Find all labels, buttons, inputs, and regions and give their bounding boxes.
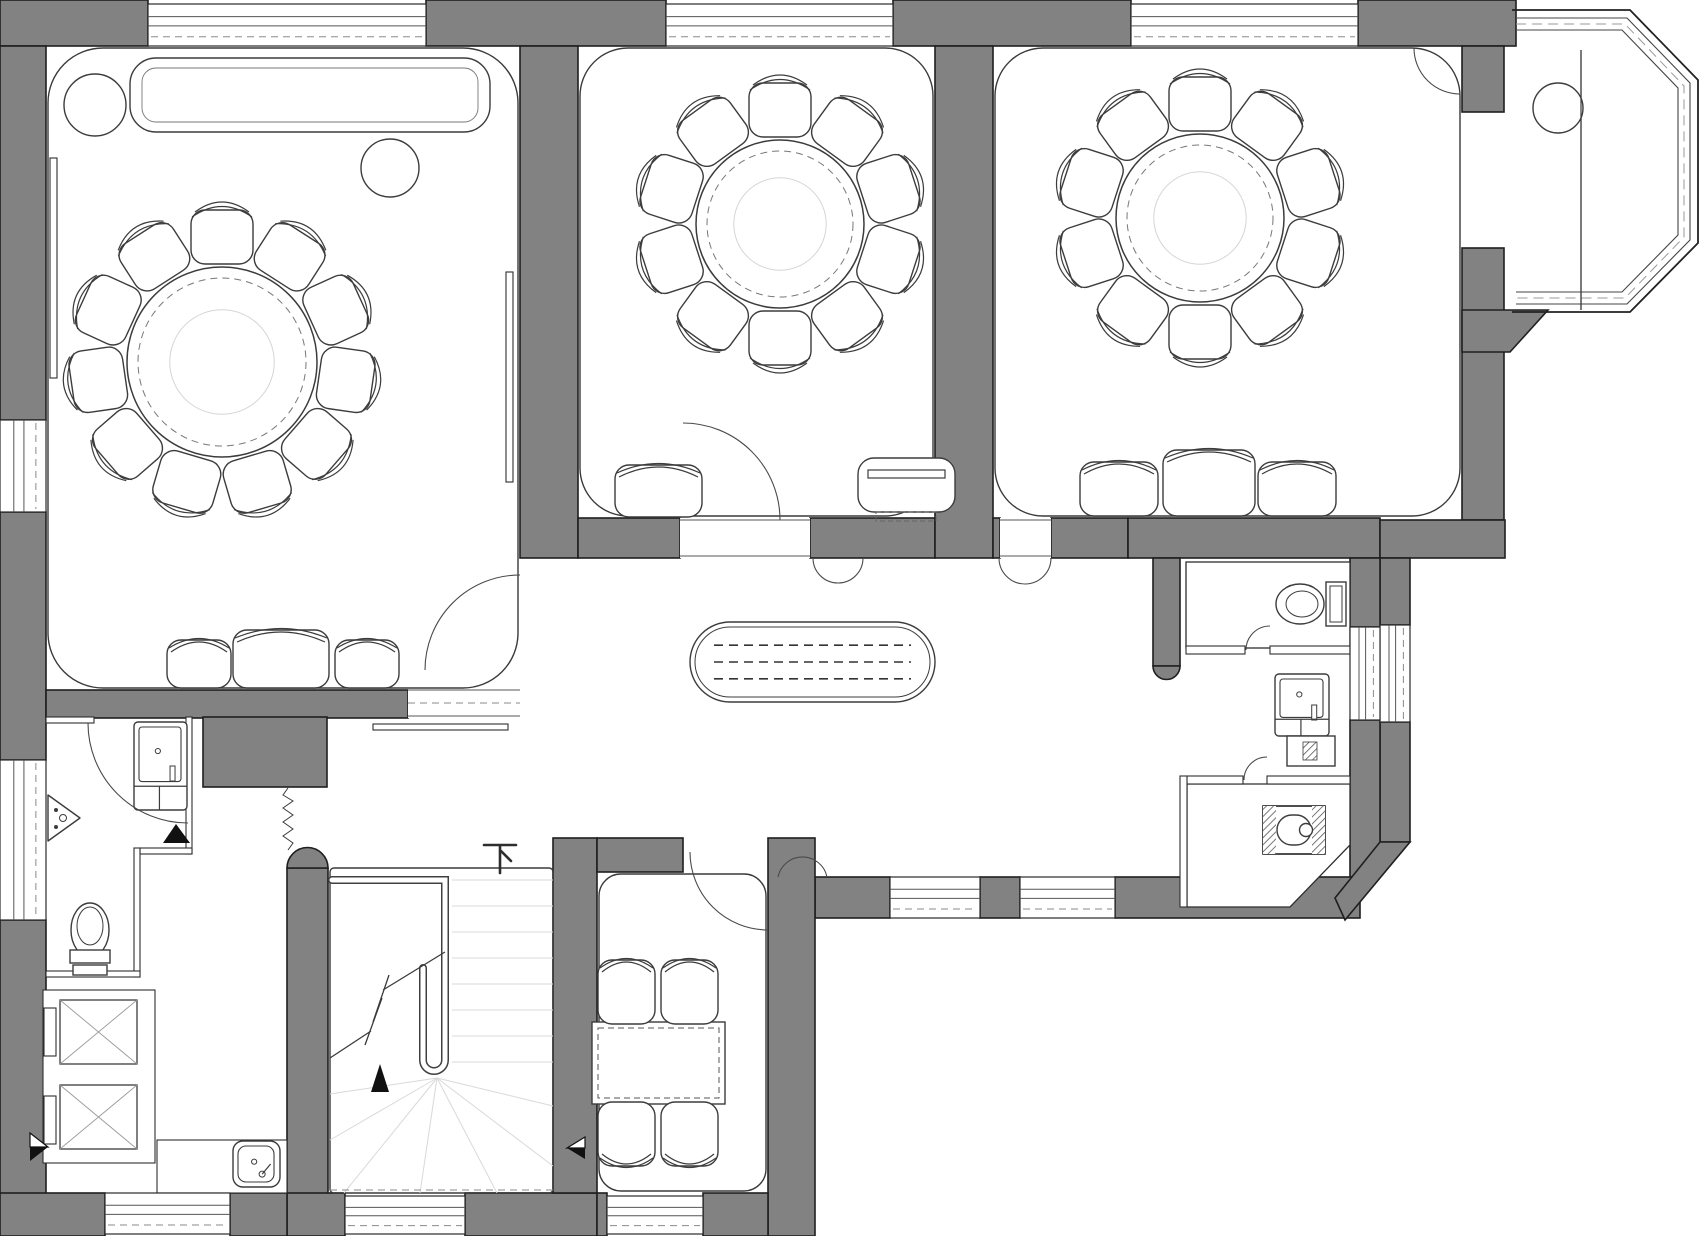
dining-table <box>592 1022 725 1104</box>
shaft-slot-right-frame <box>1350 627 1380 720</box>
dining-chair <box>598 959 655 1025</box>
corridor-bottom-b <box>980 877 1020 918</box>
window-room1-top <box>148 4 426 46</box>
washbasin-left-tap <box>170 766 175 781</box>
door-leaf-room2 <box>813 558 863 583</box>
window-left-upper <box>0 420 46 512</box>
bench-seat <box>1080 461 1158 517</box>
window-stair <box>345 1196 465 1234</box>
bottom-left-corner <box>0 1193 105 1236</box>
bay-left-pier <box>1462 46 1504 112</box>
chair <box>1169 305 1231 367</box>
bathroom-left-wall <box>1153 558 1180 666</box>
sofa-seat-cushion <box>1163 450 1255 516</box>
left-wall-mid <box>0 512 46 760</box>
washbasin-right-counter-hatch <box>1303 742 1317 760</box>
dining-chair-cushion <box>598 960 655 1024</box>
sofa-seat-cushion <box>233 630 329 688</box>
bay-window-layer <box>1512 10 1698 312</box>
stair-wall-round-cap <box>287 847 328 868</box>
chair-seat <box>749 311 811 365</box>
stair-bottom-wall-l <box>287 1193 345 1236</box>
bath-step-wall <box>140 848 192 854</box>
window-room2-top-frame <box>666 4 893 46</box>
wing-bottom-wall <box>1380 520 1505 558</box>
bath-top-wall <box>46 717 94 723</box>
window-left-lower <box>0 760 46 920</box>
top-pier-1 <box>426 0 666 46</box>
dining-chair-cushion <box>598 1102 655 1166</box>
door-swing-squat <box>1244 757 1267 780</box>
shaft-door <box>44 1008 56 1056</box>
bay-window-dash <box>1516 24 1684 298</box>
window-bottom-left-frame <box>105 1193 230 1234</box>
room2-bottom-wall-right <box>810 518 935 558</box>
bay-side-table <box>1533 83 1583 133</box>
dining-bottom-a <box>597 1193 607 1236</box>
stair-direction-arrow <box>371 1064 389 1092</box>
wc-bottom-wall-b <box>1270 646 1350 654</box>
dining-chair <box>598 1102 655 1168</box>
chair-seat <box>1169 305 1231 359</box>
round-banquet-table-1 <box>59 202 385 524</box>
wc-bottom-wall-a <box>1186 646 1245 654</box>
window-stair-frame <box>345 1196 465 1234</box>
room3-bottom-wall-b <box>1051 518 1128 558</box>
dining-left-wall <box>553 838 597 1193</box>
toilet-tank <box>70 950 110 963</box>
left-wall-upper <box>0 46 46 420</box>
corridor-bottom-a <box>815 877 890 918</box>
door-gap-room2 <box>680 518 810 558</box>
window-room2-top <box>666 4 893 46</box>
washbasin-right <box>1275 674 1335 766</box>
squat-top-wall-a <box>1187 776 1243 784</box>
right-wall-upper <box>1380 558 1410 625</box>
shaft-door <box>44 1096 56 1144</box>
chair-seat <box>1169 77 1231 131</box>
bay-window-inner <box>1516 18 1690 304</box>
window-corridor-b-frame <box>1020 877 1115 918</box>
stair-winder <box>437 1078 553 1106</box>
tv-cabinet-screen <box>868 470 945 478</box>
stair-winder <box>437 1078 497 1193</box>
chair <box>191 202 253 264</box>
squat-toilet-hatch <box>1263 806 1276 854</box>
wall-hung-toilet-tank <box>1326 582 1346 626</box>
window-room3-top <box>1131 4 1358 46</box>
chair <box>749 311 811 373</box>
left-wall-lower <box>0 920 46 1236</box>
squat-toilet <box>1263 806 1325 854</box>
dining-bottom-b <box>703 1193 768 1236</box>
window-dining-frame <box>607 1196 703 1234</box>
bench-seat-cushion <box>167 640 231 688</box>
mop-sink <box>233 1141 280 1187</box>
bathroom-top-wall <box>1128 518 1380 558</box>
window-room3-top-frame <box>1131 4 1358 46</box>
toilet-bowl <box>71 903 109 957</box>
stair-left-wall <box>287 868 328 1236</box>
room1-bottom-wall <box>46 690 408 718</box>
round-banquet-table-3-top <box>1116 134 1284 302</box>
floor-plan-page <box>0 0 1700 1236</box>
tv-cabinet <box>858 458 955 512</box>
divider-room1-room2 <box>520 46 578 558</box>
sofa-seat <box>233 629 329 689</box>
bath-right-wall-lower <box>134 848 140 977</box>
bay-window-outer <box>1512 10 1698 312</box>
window-right <box>1380 625 1410 722</box>
squat-toilet-drain <box>1300 824 1313 837</box>
bottom-mid-wall <box>230 1193 287 1236</box>
washbasin-left <box>134 722 187 810</box>
stair-down-label <box>484 845 516 873</box>
corridor-threshold <box>373 724 508 730</box>
bench-seat-cushion <box>335 640 399 688</box>
chair-seat <box>191 210 253 264</box>
window-bottom-left <box>105 1193 230 1234</box>
corner-basin-hole <box>54 825 58 829</box>
window-dining <box>607 1196 703 1234</box>
chair <box>749 75 811 137</box>
floor-plan <box>0 0 1700 1236</box>
squat-top-wall-b <box>1267 776 1350 784</box>
bench-seat <box>1258 461 1336 517</box>
stair-break-line <box>330 952 445 1058</box>
toilet-tank2 <box>73 965 107 975</box>
squat-toilet-hatch <box>1312 806 1325 854</box>
bench-seat <box>335 639 399 689</box>
round-banquet-table-1-top <box>127 267 317 457</box>
toilet <box>70 903 110 975</box>
window-corridor-a <box>890 877 980 918</box>
stair-bottom-wall-r <box>465 1193 597 1236</box>
dining-right-wall <box>768 838 815 1236</box>
radiator-right <box>506 272 513 482</box>
washbasin-left-unit <box>134 722 187 810</box>
dining-chair <box>661 1102 718 1168</box>
door-swing-room1 <box>425 575 520 670</box>
room3-bottom-wall-a <box>993 518 1000 558</box>
bathroom-wall-round-cap <box>1153 666 1180 680</box>
shaft-slot-right <box>1350 627 1380 720</box>
stair-layer <box>330 880 553 1193</box>
round-banquet-table-2-top <box>696 140 864 308</box>
corner-basin <box>48 795 80 841</box>
sofa-seat <box>1163 449 1255 517</box>
dumbwaiter-shaft <box>60 1085 137 1149</box>
dining-chair-cushion <box>661 1102 718 1166</box>
lounge-chair <box>615 464 702 518</box>
window-corridor-b <box>1020 877 1115 918</box>
stair-winder <box>437 1078 553 1166</box>
chair <box>220 447 297 524</box>
door-closer-coil <box>283 788 293 850</box>
bay-window-glass <box>1516 30 1678 292</box>
chair <box>59 345 129 415</box>
room2-bottom-wall-left <box>578 518 680 558</box>
bench-seat <box>167 639 231 689</box>
bay-bottom-pier <box>1462 310 1548 352</box>
washbasin-right-tap <box>1312 705 1317 720</box>
window-room1-top-frame <box>148 4 426 46</box>
corner-basin-hole <box>54 808 58 812</box>
right-wall-lower <box>1380 722 1410 842</box>
entry-top-wall <box>203 717 327 787</box>
top-wall-left <box>0 0 148 46</box>
door-gap-room2-slot <box>680 518 810 558</box>
window-corridor-a-frame <box>890 877 980 918</box>
door-leaf-room3 <box>999 558 1051 584</box>
dining-top-stub <box>597 838 683 872</box>
round-banquet-table-3 <box>1049 69 1352 367</box>
washbasin-right-unit <box>1275 674 1329 736</box>
dining-chair-cushion <box>661 960 718 1024</box>
window-right-frame <box>1380 625 1410 722</box>
chair <box>147 447 224 524</box>
window-left-upper-frame <box>0 420 46 512</box>
dining-chair <box>661 959 718 1025</box>
door-swing-dining <box>690 852 768 930</box>
door-gap-room3 <box>1000 518 1051 558</box>
bay-right-wall <box>1462 248 1504 520</box>
squat-left-wall <box>1180 776 1187 907</box>
top-pier-3 <box>1358 0 1516 46</box>
wall-hung-toilet <box>1276 582 1346 626</box>
side-table-2 <box>361 139 419 197</box>
dumbwaiter-shaft <box>60 1000 137 1064</box>
long-cabinet <box>130 58 490 132</box>
top-pier-2 <box>893 0 1131 46</box>
chair-seat <box>749 83 811 137</box>
wc-strip-upper <box>1350 558 1380 627</box>
chair <box>1169 69 1231 131</box>
window-left-lower-frame <box>0 760 46 920</box>
radiator-left <box>50 158 57 378</box>
door-gap-room3-slot <box>1000 518 1051 558</box>
wall-hung-toilet-bowl <box>1276 584 1324 624</box>
chair <box>315 345 385 415</box>
round-banquet-table-2 <box>629 75 932 373</box>
side-table-1 <box>64 74 126 136</box>
